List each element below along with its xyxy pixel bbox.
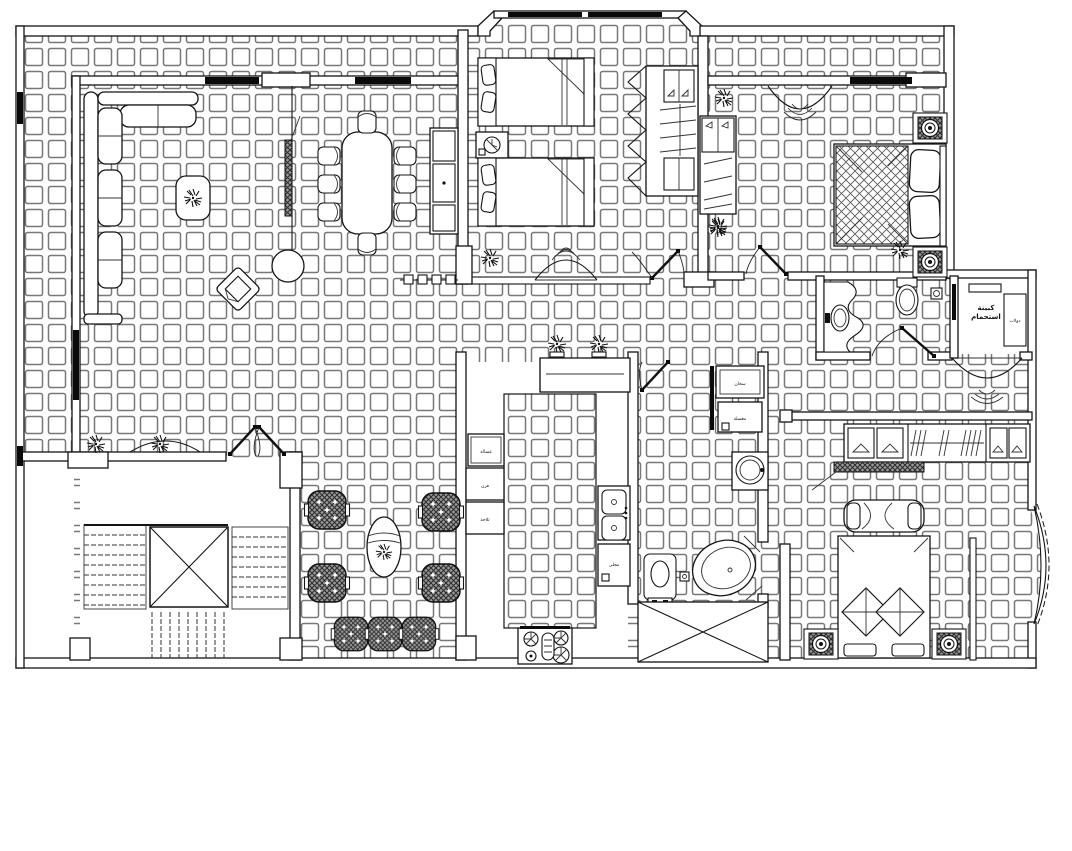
window-bar — [850, 77, 912, 84]
double-bed — [834, 144, 946, 246]
floor-plan-canvas: كبينة استحمام دولاب غسالة فرن ثلاجة — [0, 0, 1072, 851]
cabinet-tag: دولاب — [1010, 319, 1021, 324]
nightstand-lamp — [913, 247, 947, 277]
kitchen-counter — [540, 358, 630, 392]
shower-room-label-2: استحمام — [971, 313, 1001, 321]
upholstered-stool — [305, 491, 350, 529]
svg-text:ثلاجة: ثلاجة — [480, 518, 490, 523]
upholstered-stool — [399, 617, 439, 650]
storage-box: مغسلة — [718, 402, 762, 432]
appliance-box-3: ثلاجة — [466, 502, 504, 534]
floor-plan-page: كبينة استحمام دولاب غسالة فرن ثلاجة — [0, 0, 1072, 851]
svg-text:غسالة: غسالة — [480, 450, 492, 455]
upholstered-stool — [305, 564, 350, 602]
stair-shaft-x — [150, 527, 228, 607]
single-bed-1 — [478, 58, 594, 126]
window-bar — [588, 12, 662, 17]
upholstered-stool — [419, 564, 464, 602]
svg-text:فرن: فرن — [481, 484, 489, 489]
window-bar — [952, 284, 956, 320]
round-washbasin — [732, 452, 768, 490]
double-sink — [598, 486, 630, 540]
column — [272, 250, 304, 282]
dresser — [700, 116, 736, 214]
svg-text:سخان: سخان — [734, 382, 746, 387]
bench — [844, 500, 924, 532]
upholstered-stool — [419, 493, 464, 531]
light-shaft-x — [638, 602, 768, 662]
appliance-box-2: فرن — [466, 468, 504, 500]
window-bar — [73, 330, 79, 400]
gas-stove — [518, 626, 572, 664]
shower-room-label: كبينة — [978, 304, 996, 312]
water-heater-box: سخان — [716, 366, 764, 398]
window-bar — [17, 92, 23, 124]
svg-text:مجلى: مجلى — [609, 563, 620, 568]
shelf — [969, 284, 1001, 292]
nightstand-lamp — [913, 113, 947, 143]
hanging-wardrobe-row — [844, 424, 1030, 462]
oval-side-table — [367, 517, 401, 577]
svg-text:مغسلة: مغسلة — [734, 417, 747, 422]
double-bed-2 — [838, 536, 930, 658]
window-bar — [205, 77, 259, 84]
nightstand-lamp — [932, 629, 966, 659]
single-bed-2 — [478, 158, 594, 226]
nightstand-lamp — [804, 629, 838, 659]
appliance-box-1: غسالة — [468, 434, 504, 466]
window-bar — [17, 446, 23, 466]
window-bar — [508, 12, 582, 17]
nightstand-clock — [476, 132, 508, 158]
sink-cabinet: مجلى — [598, 544, 630, 586]
coffee-table — [176, 176, 210, 220]
kitchen-island — [504, 394, 596, 628]
sideboard — [430, 128, 458, 234]
window-bar — [355, 77, 411, 84]
